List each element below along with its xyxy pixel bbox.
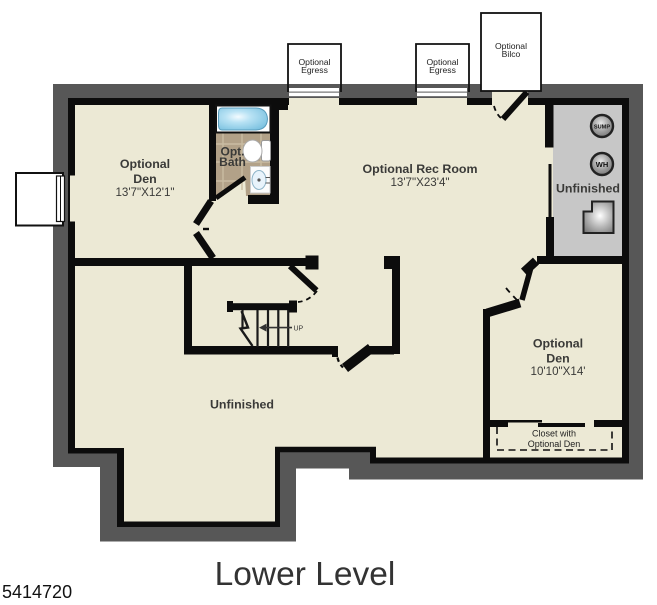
svg-text:Unfinished: Unfinished: [210, 398, 274, 412]
svg-text:Bilco: Bilco: [502, 49, 521, 59]
svg-text:13'7"X12'1": 13'7"X12'1": [115, 186, 174, 199]
svg-text:Optional Den: Optional Den: [528, 439, 581, 449]
svg-text:Optional Rec Room: Optional Rec Room: [363, 162, 478, 176]
svg-text:WH: WH: [596, 160, 609, 169]
svg-text:Optional: Optional: [120, 157, 170, 171]
svg-text:13'7"X23'4": 13'7"X23'4": [390, 176, 449, 189]
svg-text:Closet with: Closet with: [532, 429, 576, 439]
svg-text:Egress: Egress: [429, 65, 456, 75]
svg-text:Egress: Egress: [301, 65, 328, 75]
svg-text:5414720: 5414720: [2, 582, 72, 600]
svg-text:Den: Den: [133, 172, 156, 186]
svg-text:Den: Den: [546, 352, 569, 366]
svg-text:10'10"X14': 10'10"X14': [531, 365, 586, 378]
svg-text:Unfinished: Unfinished: [556, 182, 620, 196]
svg-text:Bath: Bath: [219, 155, 246, 169]
svg-text:SUMP: SUMP: [594, 125, 610, 131]
svg-text:Lower Level: Lower Level: [215, 556, 396, 593]
svg-text:UP: UP: [294, 326, 304, 333]
svg-text:Optional: Optional: [533, 337, 583, 351]
